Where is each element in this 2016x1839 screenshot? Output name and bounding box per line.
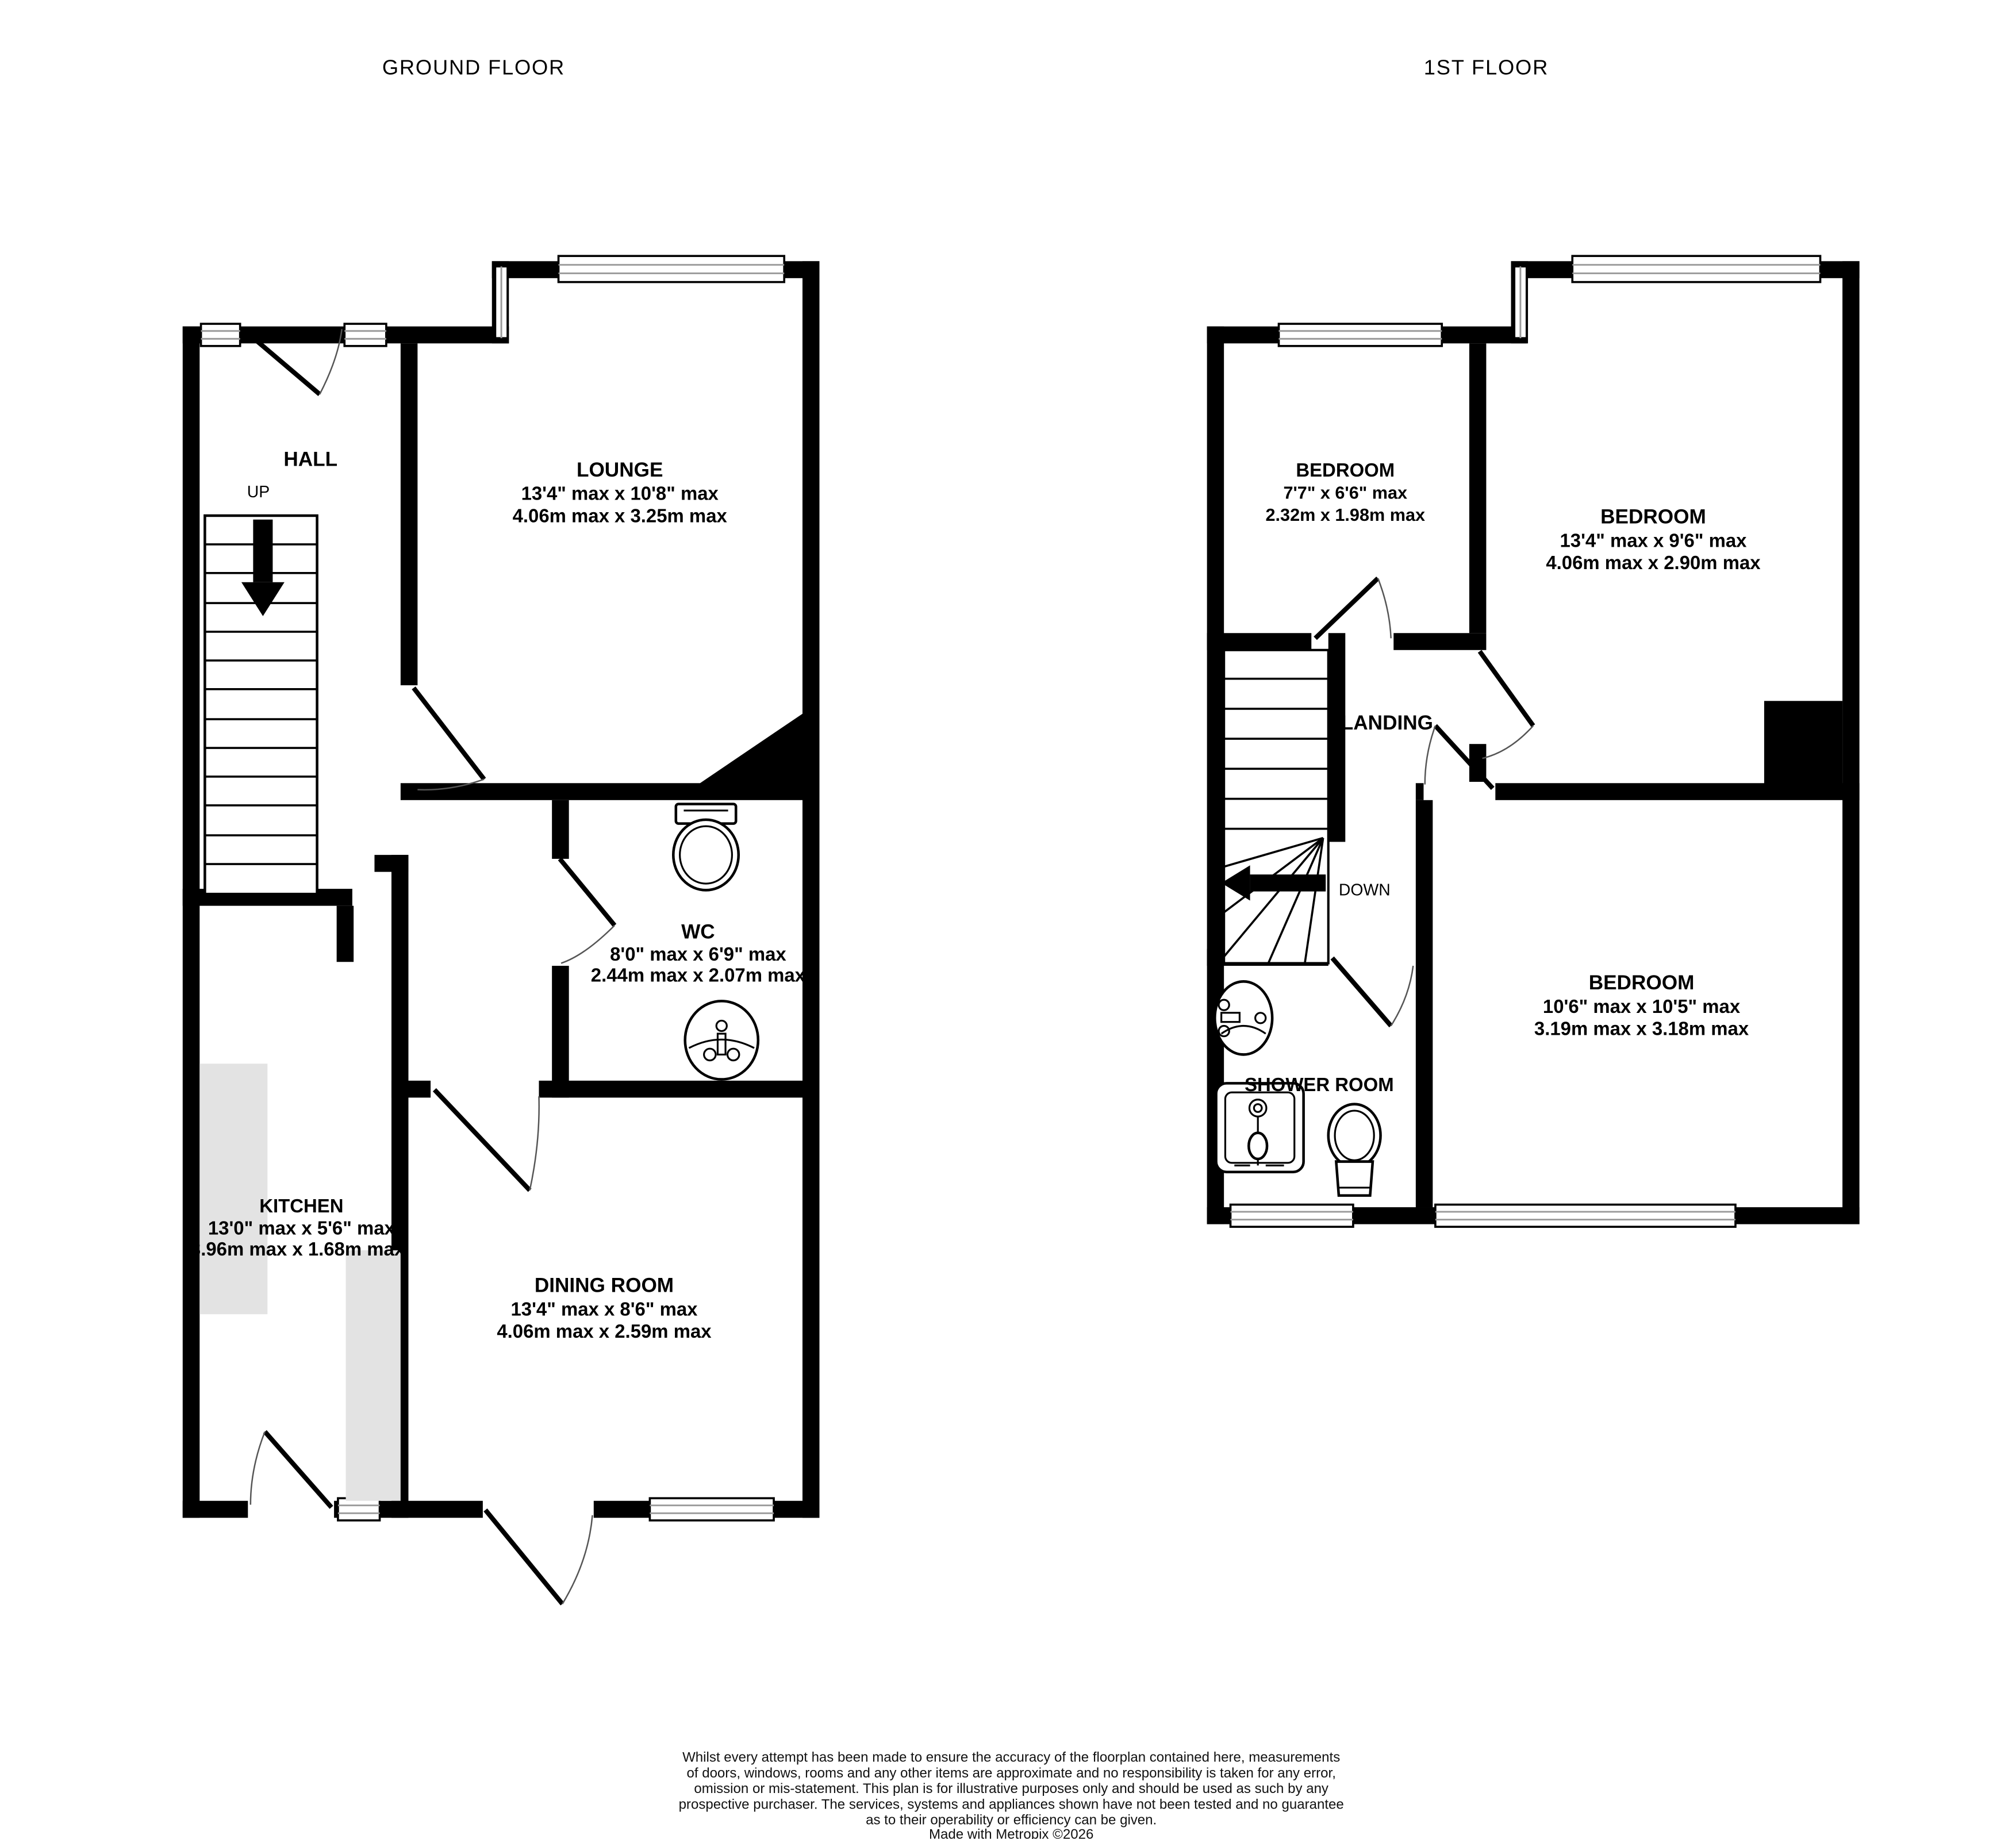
shower-room-label: SHOWER ROOM: [1245, 1074, 1394, 1095]
kitchen-dims-imperial: 13'0" max x 5'6" max: [208, 1218, 395, 1239]
dining-door-swing: [435, 1090, 539, 1191]
shower-room-door-swing: [1333, 958, 1414, 1026]
metropix-credit: Made with Metropix ©2026: [929, 1827, 1093, 1839]
back-bedroom-dims-metric: 3.19m max x 3.18m max: [1534, 1018, 1749, 1039]
shower-icon: [1216, 1083, 1304, 1172]
front-bedroom-label: BEDROOM: [1600, 506, 1706, 528]
wall: [1393, 633, 1486, 650]
kitchen-back-door-swing: [251, 1431, 332, 1507]
window: [338, 1498, 380, 1521]
basin-icon: [685, 1001, 758, 1079]
dining-dims-metric: 4.06m max x 2.59m max: [497, 1320, 712, 1342]
floorplan-drawing: GROUND FLOOR: [0, 0, 2016, 1839]
door-opening: [431, 1080, 539, 1099]
wc-label: WC: [681, 920, 715, 943]
wall: [552, 800, 569, 859]
lounge-dims-metric: 4.06m max x 3.25m max: [513, 505, 728, 526]
door-opening: [483, 1499, 594, 1519]
first-floor-plan: 1ST FLOOR: [1207, 56, 1860, 1227]
up-label: UP: [247, 483, 270, 501]
small-bedroom-door-swing: [1315, 578, 1391, 638]
front-bedroom-dims-imperial: 13'4" max x 9'6" max: [1560, 529, 1747, 551]
back-bedroom-dims-imperial: 10'6" max x 10'5" max: [1543, 996, 1741, 1017]
wall: [1207, 633, 1312, 650]
wall: [401, 343, 418, 685]
disclaimer-line: prospective purchaser. The services, sys…: [679, 1796, 1344, 1812]
basin-icon: [1215, 981, 1272, 1054]
dining-label: DINING ROOM: [535, 1274, 674, 1297]
wall: [1469, 343, 1487, 633]
small-bedroom-dims-metric: 2.32m x 1.98m max: [1266, 505, 1426, 525]
window: [650, 1498, 774, 1521]
window: [344, 324, 386, 346]
dining-back-door-swing: [485, 1510, 592, 1604]
disclaimer-line: Whilst every attempt has been made to en…: [682, 1750, 1340, 1765]
wc-dims-metric: 2.44m max x 2.07m max: [591, 964, 806, 985]
dining-dims-imperial: 13'4" max x 8'6" max: [510, 1298, 698, 1319]
window: [1514, 266, 1527, 338]
wall: [183, 327, 200, 1518]
window: [1572, 256, 1820, 282]
disclaimer-line: omission or mis-statement. This plan is …: [694, 1781, 1328, 1796]
stairs-up: [205, 516, 317, 894]
window: [1435, 1204, 1735, 1227]
wall: [1416, 800, 1433, 1207]
hall-label: HALL: [283, 448, 337, 471]
toilet-icon: [1328, 1104, 1381, 1196]
floorplan-page: GROUND FLOOR: [0, 0, 2016, 1839]
wall: [337, 906, 354, 962]
disclaimer-line: as to their operability or efficiency ca…: [866, 1813, 1157, 1828]
lounge-label: LOUNGE: [577, 459, 663, 481]
wall: [802, 261, 820, 1518]
front-bedroom-door-swing: [1480, 651, 1533, 758]
window: [1279, 324, 1442, 346]
first-floor-title: 1ST FLOOR: [1424, 56, 1549, 79]
back-bedroom-label: BEDROOM: [1589, 972, 1695, 994]
stairs-down: [1222, 650, 1328, 963]
kitchen-dims-metric: 3.96m max x 1.68m max: [190, 1238, 405, 1260]
down-label: DOWN: [1339, 881, 1391, 900]
window: [201, 324, 240, 346]
wall: [1328, 633, 1346, 842]
small-bedroom-label: BEDROOM: [1296, 459, 1395, 481]
footer-disclaimer: Whilst every attempt has been made to en…: [679, 1750, 1344, 1839]
lounge-door-swing: [414, 688, 485, 790]
door-opening: [248, 1499, 334, 1519]
wall: [1842, 261, 1860, 1224]
wc-door-swing: [560, 859, 615, 963]
door-opening: [1423, 782, 1495, 801]
window: [559, 256, 785, 282]
wc-dims-imperial: 8'0" max x 6'9" max: [610, 943, 786, 965]
lounge-dims-imperial: 13'4" max x 10'8" max: [521, 483, 719, 504]
disclaimer-line: of doors, windows, rooms and any other i…: [686, 1765, 1335, 1781]
window: [1231, 1204, 1353, 1227]
landing-label: LANDING: [1341, 712, 1433, 734]
front-bedroom-dims-metric: 4.06m max x 2.90m max: [1546, 552, 1761, 573]
small-bedroom-dims-imperial: 7'7" x 6'6" max: [1283, 483, 1407, 502]
kitchen-label: KITCHEN: [259, 1195, 343, 1216]
kitchen-counter: [199, 1064, 267, 1314]
ground-floor-title: GROUND FLOOR: [382, 56, 565, 79]
kitchen-counter: [346, 1250, 401, 1501]
wall: [552, 966, 569, 1097]
toilet-icon: [673, 804, 738, 890]
window: [495, 266, 508, 338]
chimney-breast: [1764, 701, 1842, 784]
ground-floor-plan: GROUND FLOOR: [183, 56, 820, 1604]
chimney-breast: [698, 702, 819, 785]
